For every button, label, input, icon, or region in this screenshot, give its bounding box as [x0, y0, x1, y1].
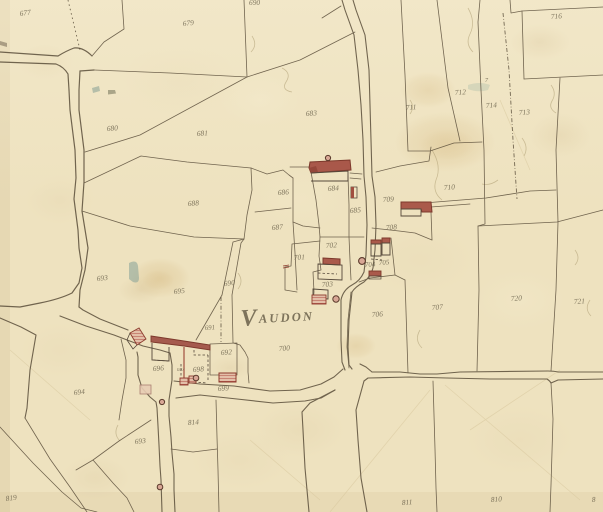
svg-text:707: 707 [432, 302, 444, 312]
svg-text:694: 694 [73, 387, 85, 397]
svg-text:811: 811 [402, 497, 413, 507]
svg-text:712: 712 [455, 87, 467, 97]
svg-text:710: 710 [444, 182, 456, 192]
svg-text:693: 693 [134, 436, 146, 446]
svg-text:699: 699 [218, 383, 230, 393]
svg-text:720: 720 [511, 293, 523, 303]
svg-text:698: 698 [193, 364, 205, 374]
svg-text:697: 697 [177, 368, 185, 373]
svg-text:709: 709 [383, 194, 395, 204]
svg-text:814: 814 [188, 417, 200, 427]
svg-text:711: 711 [406, 102, 417, 112]
svg-text:810: 810 [491, 494, 503, 504]
svg-text:AUDON: AUDON [257, 309, 314, 326]
svg-text:692: 692 [221, 347, 233, 357]
svg-text:681: 681 [197, 128, 209, 138]
svg-text:679: 679 [182, 18, 194, 28]
svg-text:702: 702 [326, 240, 338, 250]
svg-text:680: 680 [107, 123, 119, 133]
svg-text:714: 714 [486, 100, 498, 110]
svg-text:677: 677 [19, 7, 32, 17]
svg-text:716: 716 [551, 11, 563, 21]
svg-text:819: 819 [5, 492, 18, 502]
svg-text:684: 684 [328, 183, 340, 193]
svg-text:695: 695 [173, 286, 185, 296]
svg-text:686: 686 [278, 187, 290, 197]
svg-text:688: 688 [188, 198, 200, 208]
svg-text:690: 690 [223, 278, 235, 288]
svg-text:696: 696 [153, 363, 165, 373]
svg-text:687: 687 [272, 222, 284, 232]
svg-text:701: 701 [294, 252, 306, 262]
svg-text:685: 685 [350, 205, 362, 215]
svg-text:713: 713 [519, 107, 531, 117]
svg-text:691: 691 [205, 324, 216, 332]
svg-text:693: 693 [96, 273, 108, 283]
svg-text:708: 708 [386, 222, 398, 232]
svg-text:690: 690 [249, 0, 260, 7]
svg-text:706: 706 [372, 309, 384, 319]
svg-text:721: 721 [574, 296, 586, 306]
svg-text:683: 683 [306, 108, 318, 118]
svg-text:700: 700 [279, 343, 291, 353]
svg-text:704: 704 [365, 260, 377, 269]
svg-text:703: 703 [322, 279, 334, 289]
svg-text:705: 705 [379, 258, 391, 267]
